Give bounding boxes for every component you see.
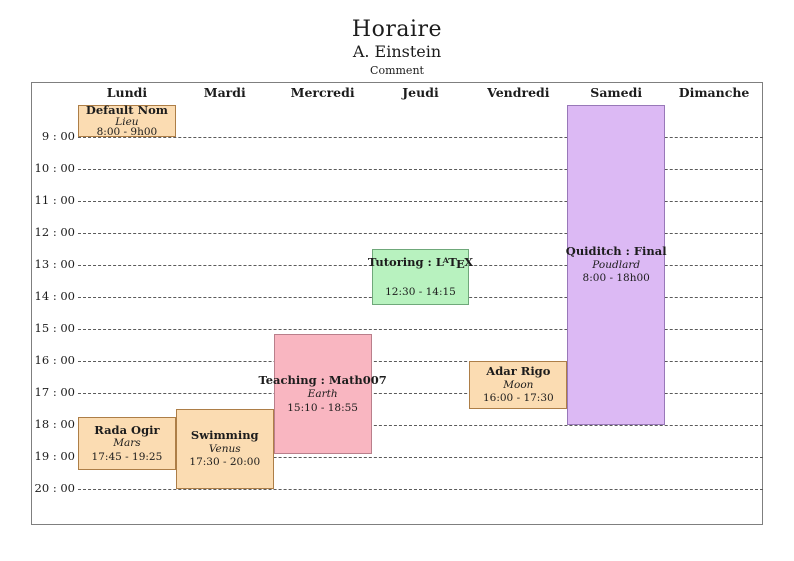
event-location: Venus	[209, 443, 241, 457]
time-label: 9 : 00	[34, 129, 75, 143]
document-header: Horaire A. Einstein Comment	[0, 17, 794, 77]
time-label: 10 : 00	[34, 161, 75, 175]
event-title: Adar Rigo	[486, 364, 550, 379]
day-header-jeudi: Jeudi	[372, 85, 470, 100]
time-label: 18 : 00	[34, 417, 75, 431]
event-time: 12:30 - 14:15	[385, 286, 456, 300]
event-block: Default NomLieu8:00 - 9h00	[78, 105, 176, 137]
event-block: Teaching : Math007Earth15:10 - 18:55	[274, 334, 372, 454]
day-header-samedi: Samedi	[567, 85, 665, 100]
event-location: Earth	[308, 388, 338, 402]
event-title: Rada Ogir	[94, 423, 159, 438]
time-label: 12 : 00	[34, 225, 75, 239]
event-time: 15:10 - 18:55	[287, 402, 358, 416]
event-time: 8:00 - 9h00	[97, 127, 158, 138]
event-block: Rada OgirMars17:45 - 19:25	[78, 417, 176, 470]
event-block: Tutoring : LATEX 12:30 - 14:15	[372, 249, 470, 305]
event-block: Quiditch : FinalPoudlard8:00 - 18h00	[567, 105, 665, 425]
event-title: Teaching : Math007	[259, 373, 387, 388]
event-time: 16:00 - 17:30	[483, 392, 554, 406]
day-header-lundi: Lundi	[78, 85, 176, 100]
time-label: 13 : 00	[34, 257, 75, 271]
time-label: 14 : 00	[34, 289, 75, 303]
comment-text: Comment	[0, 64, 794, 77]
event-location	[419, 272, 422, 286]
event-title: Swimming	[191, 428, 259, 443]
time-label: 17 : 00	[34, 385, 75, 399]
event-time: 8:00 - 18h00	[583, 272, 650, 286]
day-header-dimanche: Dimanche	[665, 85, 763, 100]
event-location: Mars	[113, 437, 140, 451]
day-header-mardi: Mardi	[176, 85, 274, 100]
author-name: A. Einstein	[0, 42, 794, 61]
time-label: 20 : 00	[34, 481, 75, 495]
page-title: Horaire	[0, 17, 794, 42]
time-label: 19 : 00	[34, 449, 75, 463]
event-block: SwimmingVenus17:30 - 20:00	[176, 409, 274, 489]
event-location: Poudlard	[592, 259, 640, 273]
time-label: 16 : 00	[34, 353, 75, 367]
event-time: 17:30 - 20:00	[189, 456, 260, 470]
schedule-page: Horaire A. Einstein Comment LundiMardiMe…	[0, 0, 794, 561]
day-header-vendredi: Vendredi	[469, 85, 567, 100]
event-title: Default Nom	[86, 105, 168, 117]
latex-wordmark: LATEX	[436, 255, 473, 269]
hour-gridline	[78, 489, 763, 490]
time-label: 15 : 00	[34, 321, 75, 335]
event-title: Tutoring : LATEX	[368, 255, 473, 272]
event-location: Moon	[503, 379, 533, 393]
event-title: Quiditch : Final	[566, 244, 667, 259]
event-block: Adar RigoMoon16:00 - 17:30	[469, 361, 567, 409]
day-header-mercredi: Mercredi	[274, 85, 372, 100]
time-label: 11 : 00	[34, 193, 75, 207]
event-time: 17:45 - 19:25	[92, 451, 163, 465]
